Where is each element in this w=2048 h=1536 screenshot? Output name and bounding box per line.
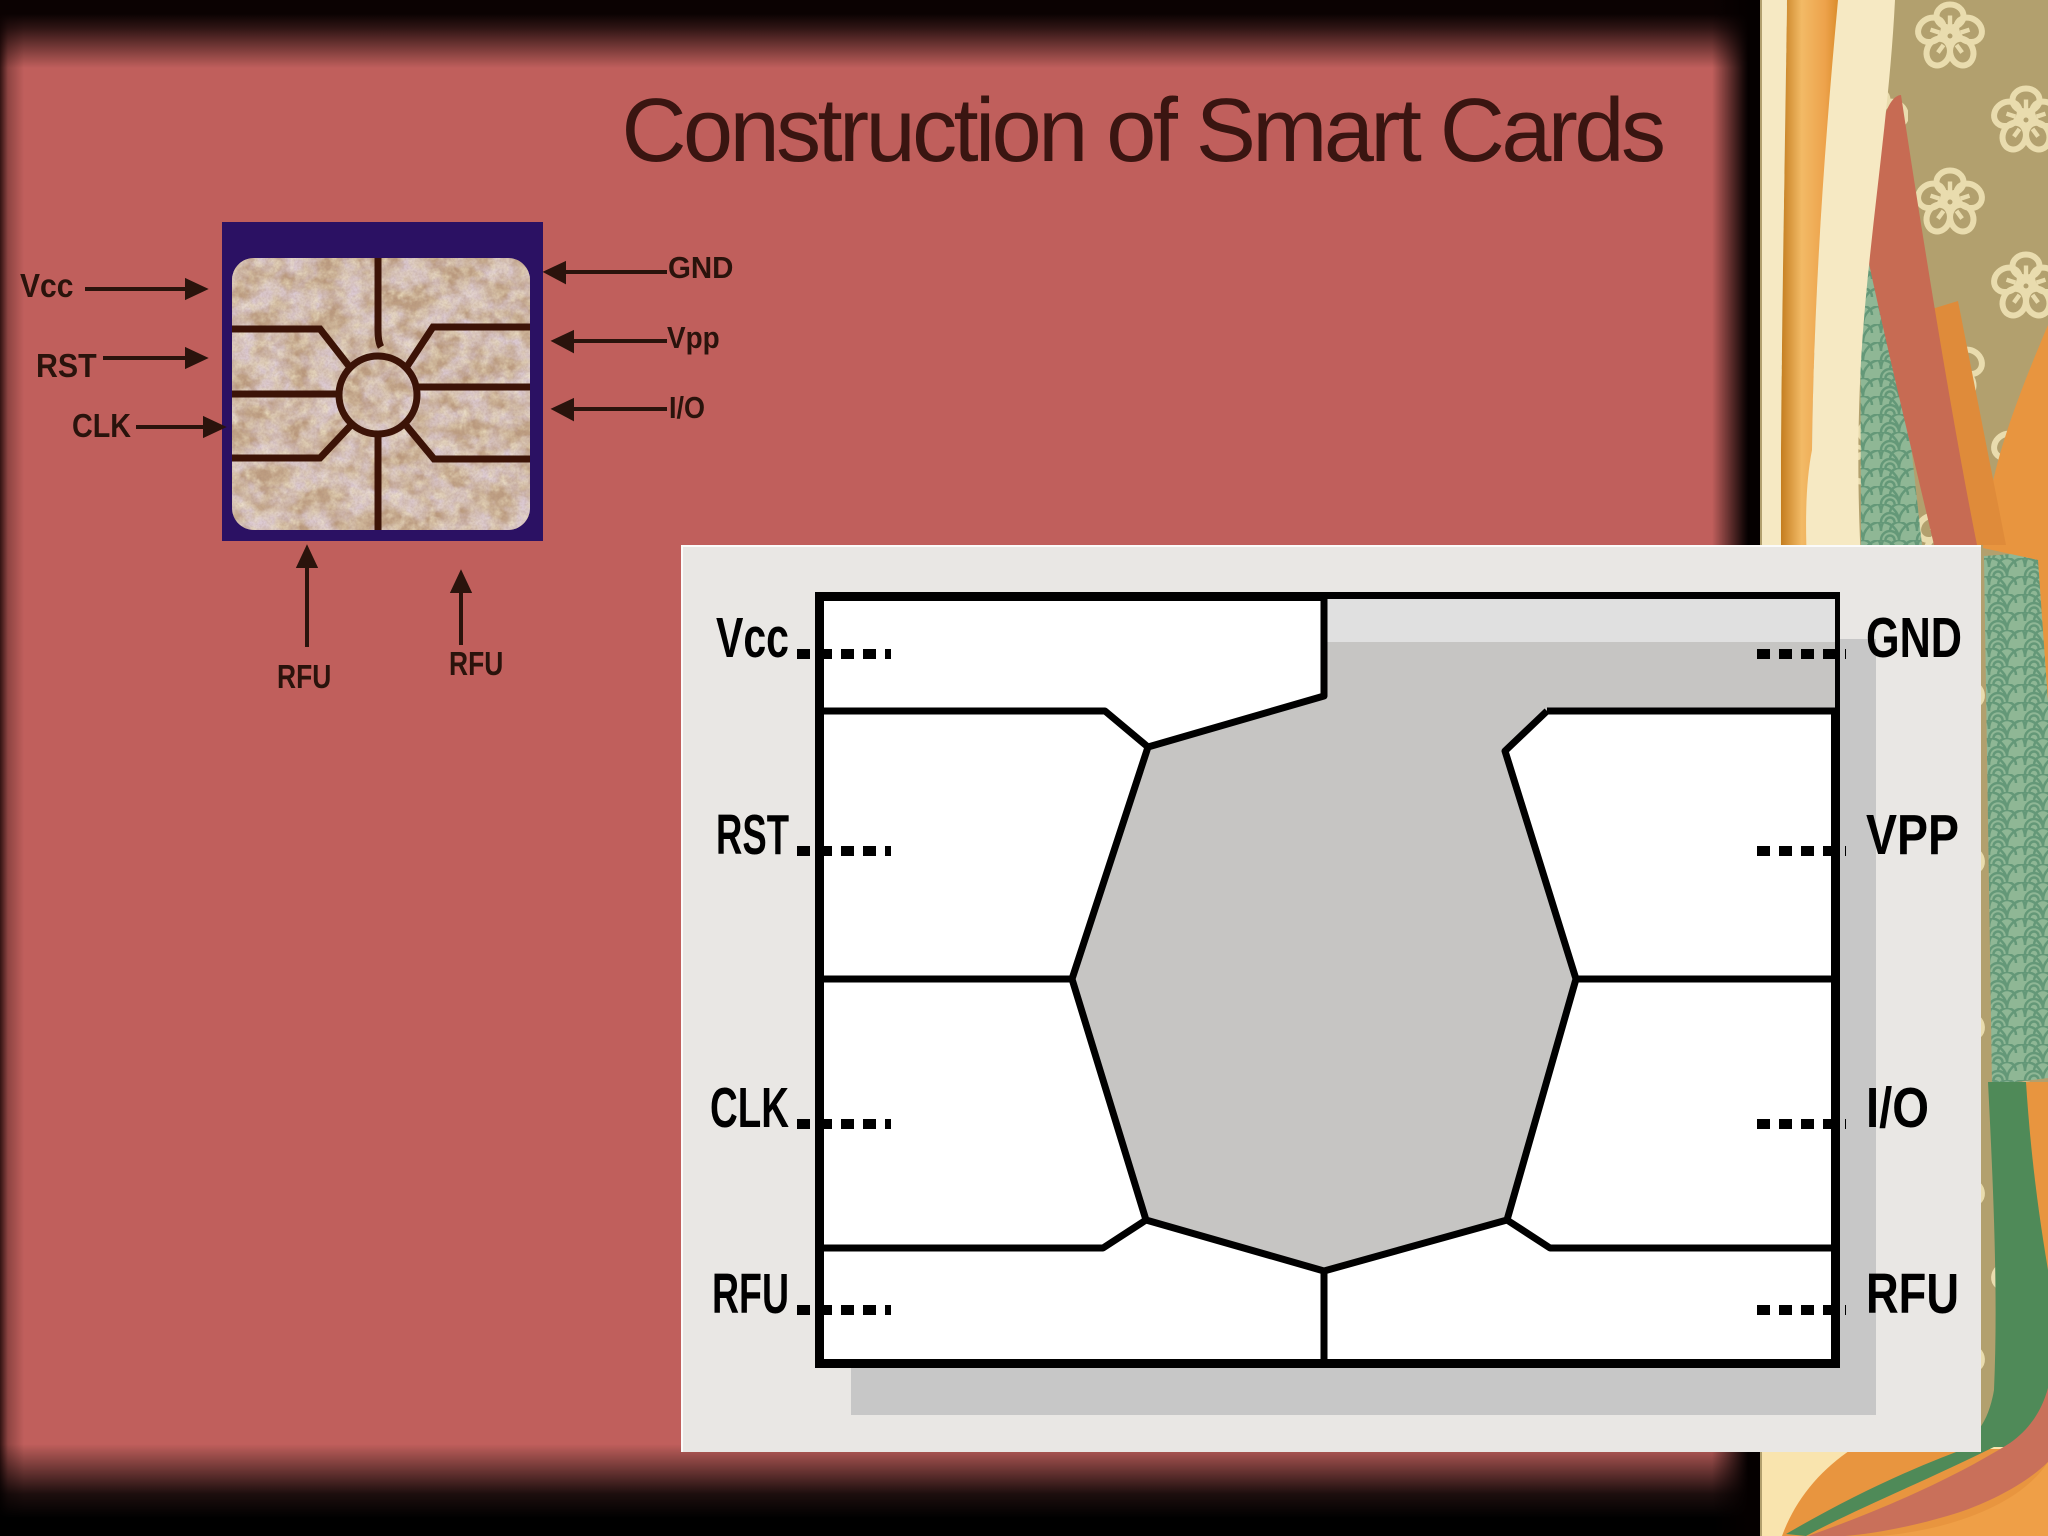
svg-text:VPP: VPP xyxy=(1866,803,1959,867)
svg-text:RST: RST xyxy=(716,803,789,867)
svg-text:RFU: RFU xyxy=(1866,1262,1959,1326)
svg-text:Vcc: Vcc xyxy=(716,606,789,670)
svg-text:CLK: CLK xyxy=(710,1076,789,1140)
svg-text:RFU: RFU xyxy=(712,1262,789,1326)
svg-text:I/O: I/O xyxy=(1866,1076,1929,1140)
svg-text:GND: GND xyxy=(1866,606,1962,670)
